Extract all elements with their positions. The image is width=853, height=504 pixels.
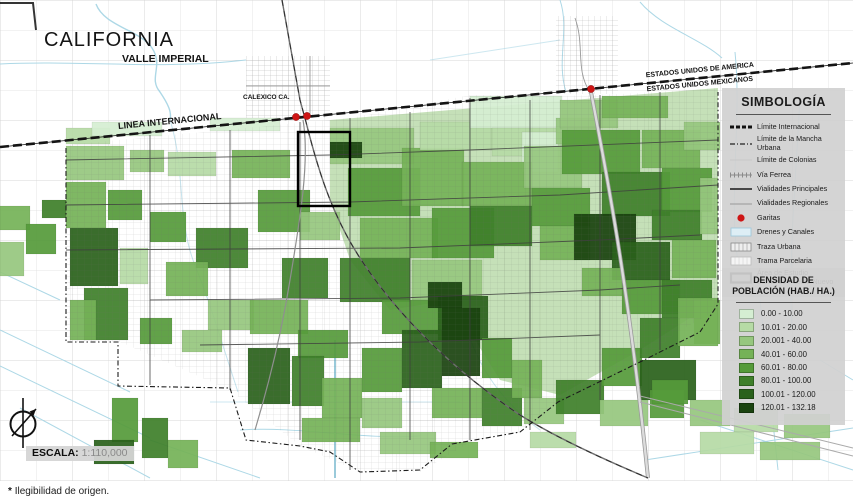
density-class-row: 60.01 - 80.00 <box>739 363 840 373</box>
density-block <box>700 432 754 454</box>
symbology-items: Límite InternacionalLímite de la Mancha … <box>727 121 840 286</box>
garita-dot <box>292 113 299 120</box>
density-swatch <box>739 322 754 332</box>
border-colonias-symbol <box>729 154 753 166</box>
density-range-label: 120.01 - 132.18 <box>761 403 816 412</box>
density-range-label: 100.01 - 120.00 <box>761 390 816 399</box>
border-urban-symbol <box>729 138 753 150</box>
density-swatch <box>739 376 754 386</box>
legend-item-label: Límite Internacional <box>757 123 820 131</box>
density-classes: 0.00 - 10.0010.01 - 20.0020.001 - 40.004… <box>727 309 840 413</box>
canal-box-icon <box>729 226 753 238</box>
railroad-icon <box>729 169 753 181</box>
legend-item-label: Traza Urbana <box>757 243 801 251</box>
density-swatch <box>739 363 754 373</box>
legend-item-label: Vialidades Regionales <box>757 199 828 207</box>
density-block <box>168 440 198 468</box>
urban-hatch-box-icon <box>729 241 753 253</box>
density-block <box>112 398 138 442</box>
parcel-hatch-box-symbol <box>729 255 753 267</box>
scale-value: 1:110,000 <box>82 447 128 459</box>
density-block <box>42 200 66 218</box>
density-range-label: 60.01 - 80.00 <box>761 363 807 372</box>
label-california: CALIFORNIA <box>44 29 174 51</box>
legend-divider <box>736 114 831 115</box>
road-primary-symbol <box>729 183 753 195</box>
density-block <box>142 418 168 458</box>
symbology-title: SIMBOLOGÍA <box>727 95 840 109</box>
legend-item: Garitas <box>729 212 840 224</box>
density-class-row: 80.01 - 100.00 <box>739 376 840 386</box>
garita-dot-icon <box>729 212 753 224</box>
density-class-row: 40.01 - 60.00 <box>739 349 840 359</box>
legend-item: Vialidades Principales <box>729 183 840 195</box>
density-class-row: 120.01 - 132.18 <box>739 403 840 413</box>
border-urban-icon <box>729 138 753 150</box>
border-international-symbol <box>729 121 753 133</box>
density-swatch <box>739 309 754 319</box>
density-class-row: 20.001 - 40.00 <box>739 336 840 346</box>
density-block <box>26 224 56 254</box>
legend-divider <box>736 302 831 303</box>
legend-item-label: Drenes y Canales <box>757 228 814 236</box>
legend-item-label: Vialidades Principales <box>757 185 827 193</box>
density-range-label: 20.001 - 40.00 <box>761 336 811 345</box>
label-valle-imperial: VALLE IMPERIAL <box>122 53 209 65</box>
symbology-legend: SIMBOLOGÍA Límite InternacionalLímite de… <box>722 88 845 297</box>
road-primary-icon <box>729 183 753 195</box>
density-class-row: 10.01 - 20.00 <box>739 322 840 332</box>
legend-item: Límite de Colonias <box>729 154 840 166</box>
railroad-symbol <box>729 169 753 181</box>
border-international-icon <box>729 121 753 133</box>
road-regional-icon <box>729 198 753 210</box>
map-page: CALIFORNIA VALLE IMPERIAL CALEXICO CA. L… <box>0 0 853 504</box>
density-swatch <box>739 389 754 399</box>
scale-box: ESCALA: 1:110,000 <box>26 446 134 461</box>
scale-label: ESCALA: <box>32 447 79 459</box>
density-legend: DENSIDAD DE POBLACIÓN (HAB./ HA.) 0.00 -… <box>722 268 845 425</box>
legend-item-label: Vía Ferrea <box>757 171 791 179</box>
border-colonias-icon <box>729 154 753 166</box>
garita-dot <box>587 85 594 92</box>
label-calexico: CALEXICO CA. <box>243 94 290 101</box>
legend-item: Trama Parcelaria <box>729 255 840 267</box>
density-range-label: 10.01 - 20.00 <box>761 323 807 332</box>
footnote: * Ilegibilidad de origen. <box>8 486 109 497</box>
legend-item-label: Límite de la Mancha Urbana <box>757 135 840 152</box>
density-block <box>0 206 30 230</box>
calexico-town-grid <box>246 56 330 118</box>
legend-item-label: Límite de Colonias <box>757 156 817 164</box>
parcel-hatch-box-icon <box>729 255 753 267</box>
legend-item: Límite Internacional <box>729 121 840 133</box>
legend-item: Drenes y Canales <box>729 226 840 238</box>
legend-item: Vía Ferrea <box>729 169 840 181</box>
road-regional-symbol <box>729 198 753 210</box>
legend-item-label: Trama Parcelaria <box>757 257 812 265</box>
density-range-label: 80.01 - 100.00 <box>761 376 811 385</box>
density-block <box>0 242 24 276</box>
legend-item-label: Garitas <box>757 214 780 222</box>
density-legend-title: DENSIDAD DE POBLACIÓN (HAB./ HA.) <box>727 275 840 297</box>
density-swatch <box>739 349 754 359</box>
density-block <box>760 442 820 460</box>
density-swatch <box>739 403 754 413</box>
density-range-label: 40.01 - 60.00 <box>761 350 807 359</box>
legend-item: Límite de la Mancha Urbana <box>729 135 840 152</box>
garita-dot-symbol <box>729 212 753 224</box>
legend-item: Vialidades Regionales <box>729 198 840 210</box>
density-class-row: 0.00 - 10.00 <box>739 309 840 319</box>
density-class-row: 100.01 - 120.00 <box>739 389 840 399</box>
urban-hatch-box-symbol <box>729 241 753 253</box>
legend-item: Traza Urbana <box>729 241 840 253</box>
garita-dot <box>303 112 310 119</box>
density-swatch <box>739 336 754 346</box>
east-town-grid <box>556 16 618 94</box>
density-range-label: 0.00 - 10.00 <box>761 309 803 318</box>
canal-box-symbol <box>729 226 753 238</box>
